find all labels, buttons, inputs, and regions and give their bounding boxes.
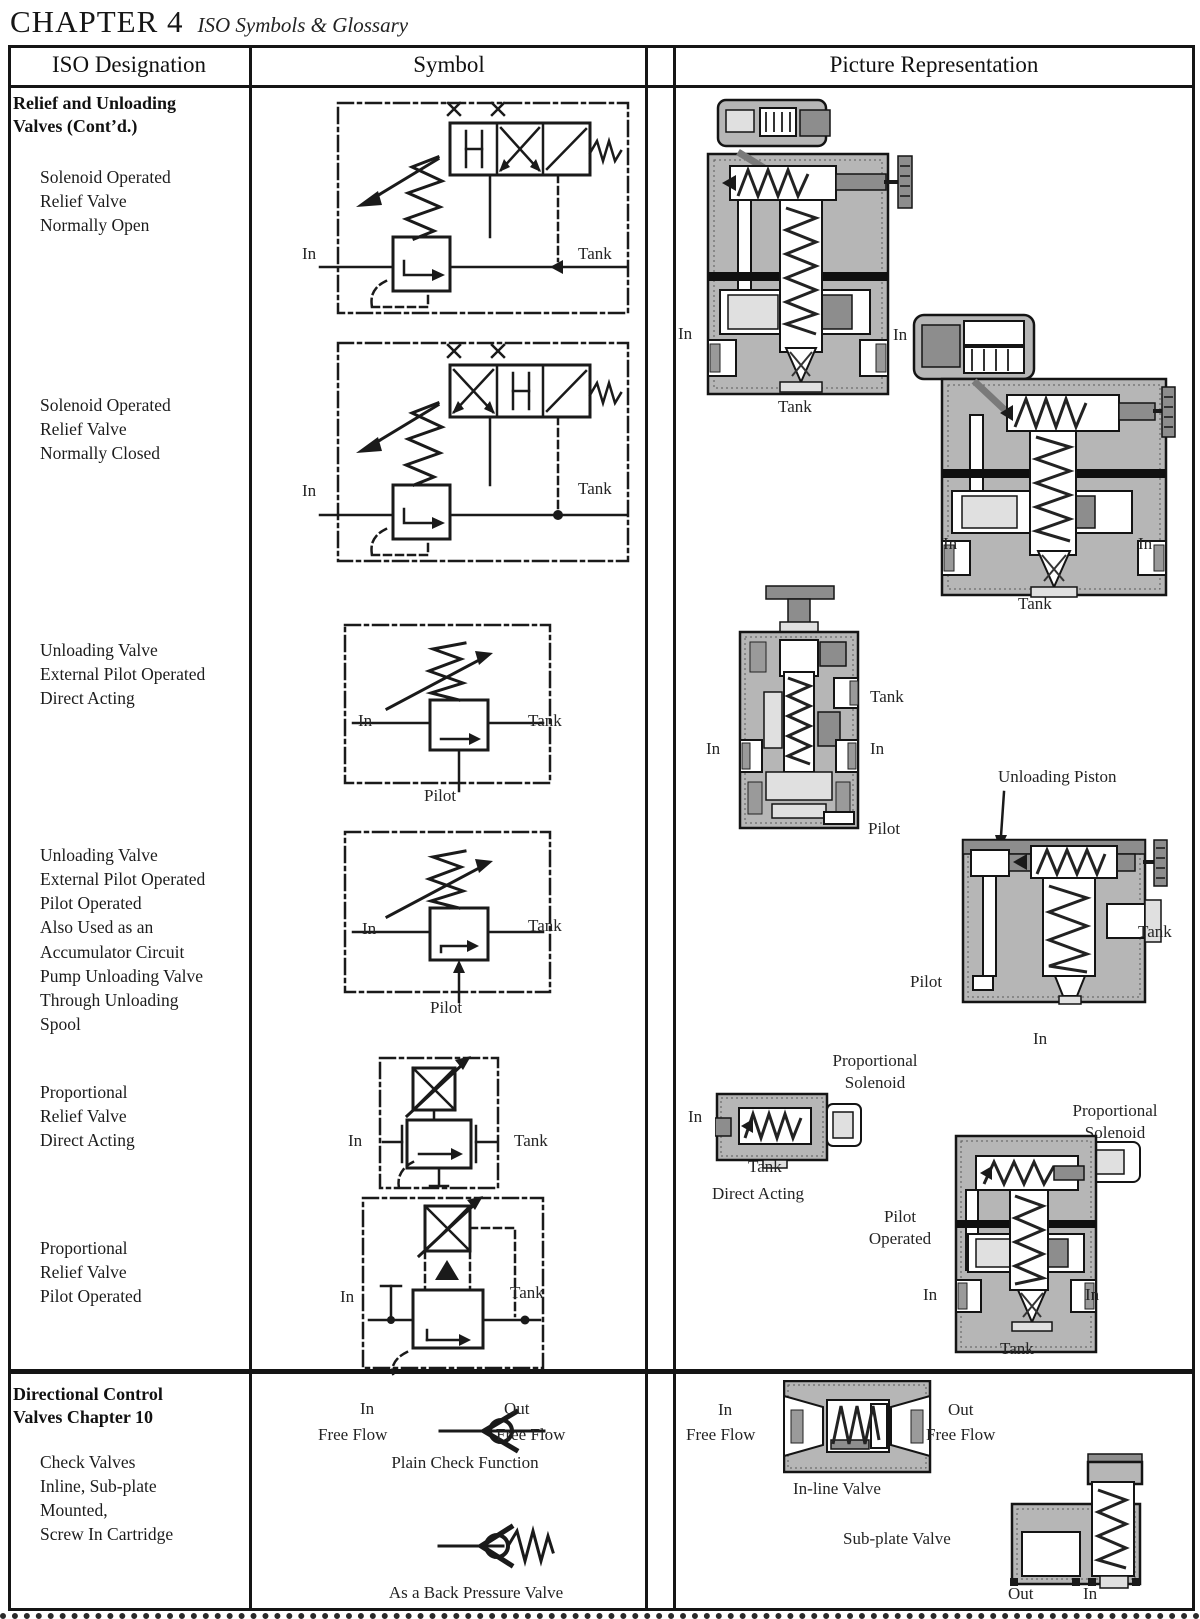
- designation-section-directional-control: Directional Control Valves Chapter 10: [13, 1383, 248, 1430]
- designation-check-valves: Check Valves Inline, Sub-plate Mounted, …: [40, 1450, 173, 1547]
- label-tank: Tank: [870, 686, 904, 708]
- chapter-heading: CHAPTER 4 ISO Symbols & Glossary: [10, 4, 408, 40]
- label-in: In: [348, 1130, 362, 1152]
- label-tank: Tank: [510, 1282, 544, 1304]
- label-in: In: [1083, 1583, 1097, 1605]
- picture-inline-check-valve: [783, 1380, 933, 1475]
- picture-solenoid-relief-valve-normally-open: [700, 96, 920, 401]
- label-free-flow: Free Flow: [686, 1424, 755, 1446]
- label-tank: Tank: [528, 710, 562, 732]
- label-tank: Tank: [1000, 1338, 1034, 1360]
- label-free-flow: Free Flow: [318, 1424, 387, 1446]
- label-pilot: Pilot: [910, 971, 942, 993]
- label-out: Out: [504, 1398, 530, 1420]
- label-out: Out: [948, 1399, 974, 1421]
- page-bottom-dotted-edge: [0, 1613, 1200, 1619]
- column-header-symbol: Symbol: [255, 52, 643, 78]
- designation-section-relief-unloading: Relief and Unloading Valves (Cont’d.): [13, 92, 248, 139]
- chapter-subtitle: ISO Symbols & Glossary: [198, 13, 409, 37]
- designation-proportional-direct: Proportional Relief Valve Direct Acting: [40, 1080, 135, 1152]
- label-tank: Tank: [1138, 921, 1172, 943]
- label-in: In: [923, 1284, 937, 1306]
- column-divider-2a: [645, 45, 648, 1611]
- designation-unloading-direct: Unloading Valve External Pilot Operated …: [40, 638, 205, 710]
- callout-unloading-piston: Unloading Piston: [998, 766, 1117, 788]
- chapter-title: CHAPTER 4: [10, 4, 184, 39]
- label-tank: Tank: [1018, 593, 1052, 615]
- column-header-picture-representation: Picture Representation: [678, 52, 1190, 78]
- symbol-solenoid-relief-normally-closed: [300, 335, 645, 580]
- label-in: In: [1138, 533, 1152, 555]
- column-header-iso-designation: ISO Designation: [10, 52, 248, 78]
- caption-inline-valve: In-line Valve: [793, 1478, 881, 1500]
- label-tank: Tank: [514, 1130, 548, 1152]
- table-border-left: [8, 45, 11, 1611]
- label-in: In: [678, 323, 692, 345]
- picture-subplate-check-valve: [992, 1452, 1147, 1592]
- label-pilot: Pilot: [868, 818, 900, 840]
- label-in: In: [1085, 1284, 1099, 1306]
- label-in: In: [1033, 1028, 1047, 1050]
- row-divider: [8, 1369, 1195, 1374]
- label-in: In: [706, 738, 720, 760]
- label-in: In: [360, 1398, 374, 1420]
- designation-solenoid-relief-nc: Solenoid Operated Relief Valve Normally …: [40, 393, 171, 465]
- symbol-back-pressure-check-valve: [437, 1518, 572, 1574]
- label-pilot: Pilot: [424, 785, 456, 807]
- label-in: In: [302, 480, 316, 502]
- label-in: In: [362, 918, 376, 940]
- designation-solenoid-relief-no: Solenoid Operated Relief Valve Normally …: [40, 165, 171, 237]
- label-pilot: Pilot: [430, 997, 462, 1019]
- picture-proportional-relief-pilot-operated: [948, 1122, 1148, 1362]
- label-in: In: [302, 243, 316, 265]
- label-out: Out: [1008, 1583, 1034, 1605]
- label-in: In: [943, 533, 957, 555]
- header-row-divider: [8, 85, 1195, 88]
- label-in: In: [870, 738, 884, 760]
- table-border-bottom: [8, 1608, 1195, 1611]
- caption-back-pressure-valve: As a Back Pressure Valve: [346, 1582, 606, 1604]
- label-in: In: [718, 1399, 732, 1421]
- label-in: In: [340, 1286, 354, 1308]
- label-in: In: [358, 710, 372, 732]
- picture-unloading-valve-direct-acting: [728, 582, 873, 837]
- label-in: In: [893, 324, 907, 346]
- label-free-flow: Free Flow: [926, 1424, 995, 1446]
- label-tank: Tank: [748, 1156, 782, 1178]
- label-tank: Tank: [578, 478, 612, 500]
- document-page: CHAPTER 4 ISO Symbols & Glossary ISO Des…: [0, 0, 1200, 1619]
- column-divider-1: [249, 45, 252, 1611]
- designation-proportional-pilot: Proportional Relief Valve Pilot Operated: [40, 1236, 142, 1308]
- caption-direct-acting: Direct Acting: [712, 1183, 804, 1205]
- table-border-top: [8, 45, 1195, 48]
- caption-subplate-valve: Sub-plate Valve: [843, 1528, 951, 1550]
- symbol-solenoid-relief-normally-open: [300, 95, 645, 330]
- caption-pilot-operated: Pilot Operated: [850, 1206, 950, 1250]
- picture-proportional-relief-direct-acting: [715, 1088, 865, 1170]
- label-in: In: [688, 1106, 702, 1128]
- label-tank: Tank: [528, 915, 562, 937]
- designation-unloading-pilot: Unloading Valve External Pilot Operated …: [40, 843, 205, 1036]
- caption-plain-check-function: Plain Check Function: [330, 1452, 600, 1474]
- picture-unloading-valve-pilot-operated: [955, 812, 1170, 1007]
- symbol-proportional-relief-pilot-operated: [325, 1190, 585, 1380]
- table-border-right: [1192, 45, 1195, 1611]
- label-tank: Tank: [778, 396, 812, 418]
- column-divider-2b: [673, 45, 676, 1611]
- label-tank: Tank: [578, 243, 612, 265]
- label-free-flow: Free Flow: [496, 1424, 565, 1446]
- picture-solenoid-relief-valve-normally-closed: [912, 303, 1177, 603]
